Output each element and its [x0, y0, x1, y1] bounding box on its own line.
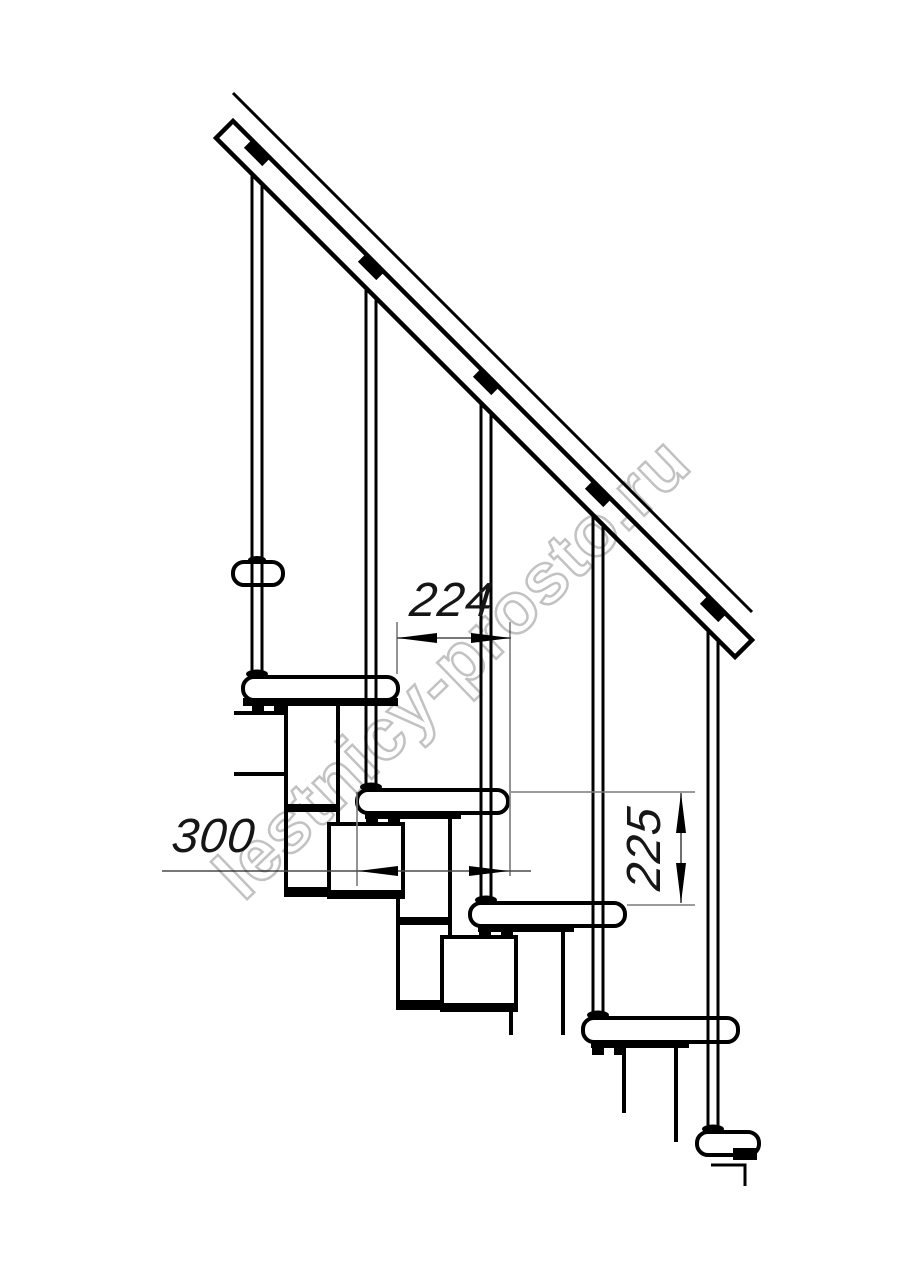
support-box-cap-step3	[329, 890, 403, 897]
baluster-1-base-collar	[246, 670, 268, 679]
tread-5-underplate	[591, 1040, 689, 1048]
tread-2-foot-a	[252, 704, 264, 713]
support-box-step3	[329, 824, 403, 897]
baluster-4	[593, 494, 603, 1019]
baluster-3	[481, 382, 491, 904]
tread-3	[357, 790, 508, 813]
dim-label-300: 300	[169, 809, 258, 863]
baluster-1	[252, 153, 262, 678]
arrow-300-right	[469, 866, 509, 876]
baluster-3-base-collar	[475, 896, 497, 905]
support-box-step4	[442, 937, 516, 1010]
staircase-line-drawing: 224 300 225	[0, 0, 914, 1280]
tread-3-foot-b	[388, 817, 400, 826]
dim-label-225: 225	[617, 804, 671, 894]
tread-5-foot-b	[614, 1046, 626, 1055]
tread-6-bracket	[733, 1148, 757, 1160]
tread-4-foot-a	[479, 930, 491, 939]
tread-4-underplate	[478, 924, 574, 932]
arrow-225-down	[676, 863, 686, 903]
arrow-224-left	[397, 633, 437, 643]
spine-clamp-step4	[397, 917, 451, 925]
baluster-5-base-collar	[702, 1125, 724, 1134]
dim-label-224: 224	[406, 573, 496, 627]
baluster-2	[366, 267, 376, 791]
tread-5	[583, 1018, 738, 1042]
tread-4-foot-b	[501, 930, 513, 939]
spine-band-step4-cut	[511, 929, 563, 1035]
baluster-4-base-collar	[587, 1011, 609, 1020]
staircase-drawing-canvas: 224 300 225 lestnicy-prosto.ru	[0, 0, 914, 1280]
tread-top-stub	[233, 562, 283, 585]
baluster-5	[708, 609, 718, 1133]
support-box-step2-open	[234, 713, 286, 774]
baluster-1-stub-collar	[248, 556, 266, 564]
tread-6-cut-line	[711, 1165, 745, 1186]
spine-band-step5-cut	[624, 1044, 676, 1142]
tread-5-foot-a	[592, 1046, 604, 1055]
tread-3-underplate	[365, 811, 461, 819]
baluster-2-base-collar	[360, 783, 382, 792]
arrow-225-up	[676, 793, 686, 833]
support-box-cap-step4	[442, 1003, 516, 1010]
spine-clamp-step3	[285, 804, 339, 812]
tread-2-foot-b	[274, 704, 286, 713]
tread-3-foot-a	[366, 817, 378, 826]
